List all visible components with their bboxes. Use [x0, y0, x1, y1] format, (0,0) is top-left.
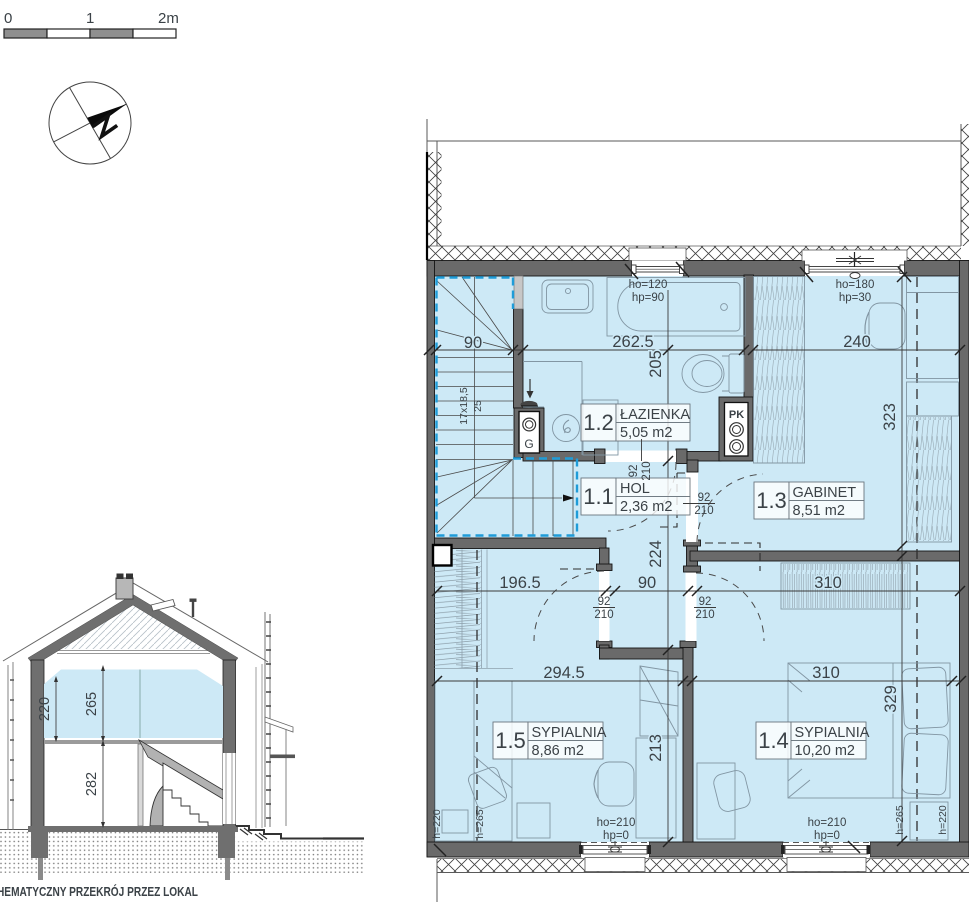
- svg-text:1: 1: [86, 10, 94, 27]
- svg-text:HEMATYCZNY PRZEKRÓJ PRZEZ LOKA: HEMATYCZNY PRZEKRÓJ PRZEZ LOKAL: [0, 884, 198, 899]
- svg-text:265: 265: [84, 692, 100, 716]
- svg-text:282: 282: [84, 772, 100, 796]
- svg-text:220: 220: [37, 697, 53, 721]
- svg-text:2m: 2m: [158, 10, 179, 27]
- svg-text:0: 0: [4, 10, 12, 27]
